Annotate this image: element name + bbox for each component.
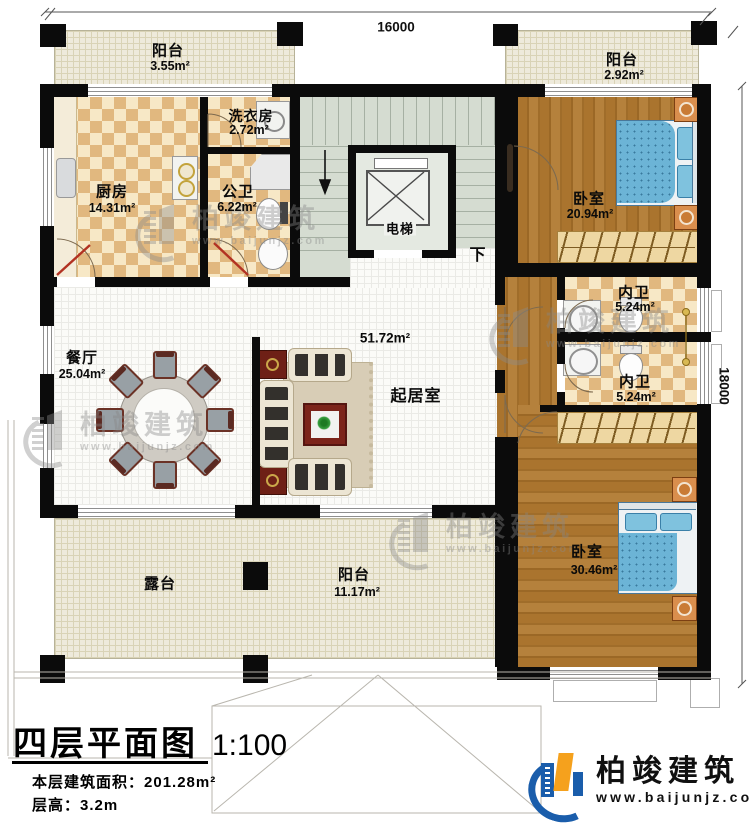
room-label-bedroom-bottom: 卧室 xyxy=(571,545,603,560)
wall-ensuite-left-c xyxy=(557,392,565,405)
column xyxy=(493,24,518,46)
bathroom-sink-icon xyxy=(569,348,598,375)
brand-name: 柏竣建筑 xyxy=(596,755,750,790)
window-dining-2 xyxy=(40,424,54,468)
room-label-living: 起居室 xyxy=(390,389,441,405)
plan-title-text: 四层平面图 xyxy=(13,725,198,763)
side-table-icon xyxy=(258,350,287,379)
dining-chair xyxy=(206,408,234,432)
window-living-terrace xyxy=(78,505,235,518)
sofa xyxy=(288,348,352,382)
wall-dining-living xyxy=(252,337,260,505)
coffee-table xyxy=(303,403,347,446)
sofa xyxy=(288,458,352,496)
wall-ensuite-bottom xyxy=(540,405,711,412)
wall-ensuite-left-a xyxy=(557,277,565,300)
brand-logo-building-blue xyxy=(541,763,554,797)
room-label-balcony-tr: 阳台 xyxy=(606,53,638,68)
wall-ensuite-mid xyxy=(557,332,711,342)
window-living-balcony xyxy=(320,505,432,518)
wall-living-hall-a xyxy=(495,277,505,305)
window-balcony-top-right xyxy=(545,84,692,97)
bed-duvet xyxy=(617,121,675,203)
room-label-ensuite-1: 内卫 xyxy=(618,286,650,301)
brand-logo: 柏竣建筑 www.baijunjz.com xyxy=(532,750,750,810)
room-area-balcony-bottom: 11.17m² xyxy=(334,586,380,599)
room-label-dining: 餐厅 xyxy=(66,351,98,366)
room-area-ensuite-2: 5.24m² xyxy=(616,391,656,404)
floor-area-value: 201.28m² xyxy=(144,774,216,791)
window-kitchen xyxy=(40,148,54,226)
nightstand-icon xyxy=(674,97,699,122)
window-ensuite-2 xyxy=(697,342,711,404)
dimension-right: 18000 xyxy=(717,367,732,405)
toilet-tank-icon xyxy=(280,202,288,224)
stove-burner-icon xyxy=(178,163,195,180)
wall-kitchen-bottom-c xyxy=(248,277,350,287)
nightstand-icon xyxy=(672,477,697,502)
dining-chair xyxy=(153,351,177,379)
nightstand-icon xyxy=(674,205,699,230)
room-label-ensuite-2: 内卫 xyxy=(619,375,651,390)
bathroom-sink-icon xyxy=(569,305,598,334)
floor-height-value: 3.2m xyxy=(80,797,118,814)
wall-kitchen-bottom-b xyxy=(95,277,210,287)
toilet-icon xyxy=(256,198,282,230)
bed-pillow-icon xyxy=(660,513,692,531)
stair-down-label: 下 xyxy=(469,248,486,264)
side-table-icon xyxy=(258,466,287,495)
stairs-left-flight xyxy=(300,145,348,263)
room-label-balcony-tl: 阳台 xyxy=(152,44,184,59)
floor-height-line: 层高：3.2m xyxy=(32,794,118,815)
brand-logo-building-small xyxy=(573,772,583,796)
room-area-balcony-tl: 3.55m² xyxy=(150,60,190,73)
title-underline xyxy=(12,761,208,764)
window-dining-1 xyxy=(40,326,54,374)
room-area-kitchen: 14.31m² xyxy=(89,202,136,215)
sofa-cushions xyxy=(295,464,345,490)
column xyxy=(243,655,268,683)
floor-height-label: 层高： xyxy=(32,797,80,814)
wardrobe-icon xyxy=(557,412,699,444)
plant-icon xyxy=(317,416,331,430)
vanity-counter xyxy=(563,300,601,335)
wall-kitchen-bottom-a xyxy=(40,277,57,287)
bed-duvet xyxy=(619,533,677,591)
window-balcony-top-left xyxy=(88,84,272,97)
balcony-top-right-floor xyxy=(505,30,699,86)
brand-url: www.baijunjz.com xyxy=(596,789,750,805)
nightstand-icon xyxy=(672,596,697,621)
kitchen-sink-icon xyxy=(56,158,76,198)
terrace-balcony-floor xyxy=(54,518,499,659)
wardrobe-icon xyxy=(557,231,699,263)
room-label-balcony-bottom: 阳台 xyxy=(338,568,370,583)
bed-icon xyxy=(618,502,699,594)
brand-text-group: 柏竣建筑 www.baijunjz.com xyxy=(596,755,750,806)
column xyxy=(40,24,66,47)
column xyxy=(243,562,268,590)
sofa-cushions xyxy=(295,354,345,376)
sofa xyxy=(259,380,294,468)
column xyxy=(691,21,717,45)
window-bedroom-bottom xyxy=(550,667,658,680)
room-area-laundry: 2.72m² xyxy=(229,124,269,137)
room-label-laundry: 洗衣房 xyxy=(229,109,274,123)
bathroom-sink-icon xyxy=(258,238,288,270)
room-label-bedroom-top: 卧室 xyxy=(573,192,605,207)
sofa-cushions xyxy=(265,387,288,461)
floor-area-line: 本层建筑面积：201.28m² xyxy=(32,771,216,792)
room-label-elevator: 电梯 xyxy=(384,223,416,236)
room-label-kitchen: 厨房 xyxy=(96,185,128,200)
dining-chair xyxy=(153,461,177,489)
column xyxy=(40,655,65,683)
elevator-counterweight-icon xyxy=(374,158,428,169)
window-frame-right-1 xyxy=(711,290,722,332)
bed-pillow-icon xyxy=(625,513,657,531)
floor-plan: 阳台 3.55m² 阳台 2.92m² 厨房 14.31m² 洗衣房 2.72m… xyxy=(0,0,750,826)
stove-burner-icon xyxy=(178,180,195,197)
vanity-counter xyxy=(563,344,601,376)
wall-bath-stair xyxy=(290,97,300,285)
wall-bedroom-top-bottom xyxy=(518,263,711,277)
room-area-public-bath: 6.22m² xyxy=(217,201,257,214)
wall-bedroom-bottom-left xyxy=(495,437,518,667)
elevator-door-opening xyxy=(374,250,422,258)
bay-frame-bottom-right xyxy=(690,678,720,708)
window-ensuite-1 xyxy=(697,288,711,332)
stairs-top-flight xyxy=(300,97,495,145)
room-label-terrace: 露台 xyxy=(144,577,176,592)
room-area-ensuite-1: 5.24m² xyxy=(615,301,655,314)
door-leaf xyxy=(507,144,513,192)
bay-frame-bottom xyxy=(553,680,657,702)
floor-area-label: 本层建筑面积： xyxy=(32,774,144,791)
room-area-dining: 25.04m² xyxy=(59,368,106,381)
room-label-public-bath: 公卫 xyxy=(222,185,254,200)
bed-headboard xyxy=(619,503,696,510)
brand-logo-icon xyxy=(532,750,588,810)
dining-chair xyxy=(96,408,124,432)
plan-scale: 1:100 xyxy=(212,729,287,762)
dimension-top: 16000 xyxy=(377,20,415,35)
dining-table-top xyxy=(133,388,195,450)
plan-title: 四层平面图1:100 xyxy=(13,716,287,765)
column xyxy=(277,22,303,46)
room-area-bedroom-top: 20.94m² xyxy=(567,208,614,221)
room-area-balcony-tr: 2.92m² xyxy=(604,69,644,82)
elevator-cab xyxy=(366,170,430,226)
wall-laundry-bath xyxy=(208,147,290,154)
wall-living-hall-b xyxy=(495,370,505,393)
stove-icon xyxy=(172,156,198,200)
room-area-living: 51.72m² xyxy=(360,331,410,345)
bed-icon xyxy=(616,120,699,206)
wall-kitchen-right xyxy=(200,97,208,277)
room-area-bedroom-bottom: 30.46m² xyxy=(571,564,618,577)
